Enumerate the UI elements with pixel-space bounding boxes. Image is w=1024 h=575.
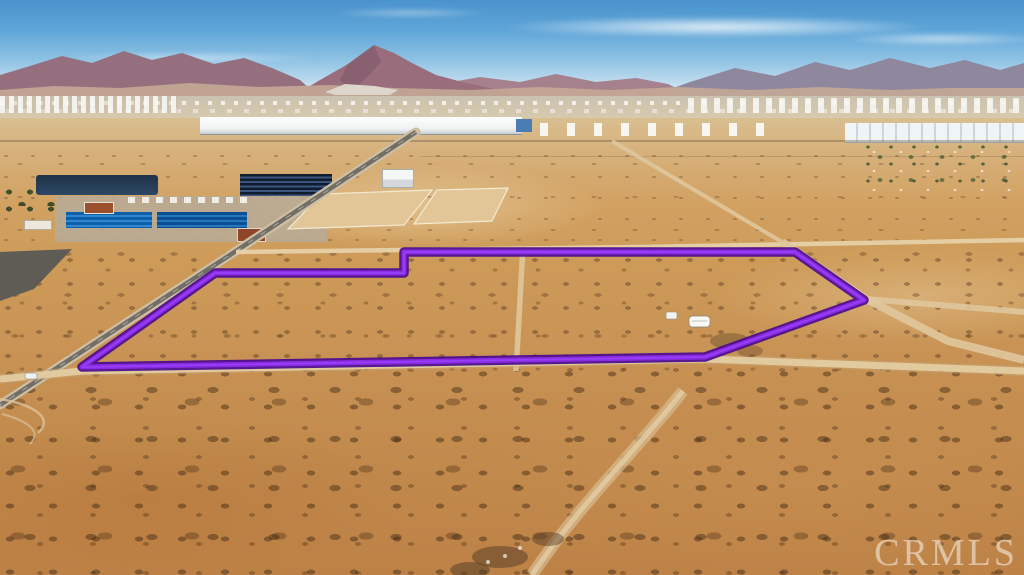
dirt-road-diagonal bbox=[612, 141, 782, 242]
paved-lot-wedge bbox=[0, 249, 72, 301]
tire-track bbox=[2, 414, 35, 444]
car-on-road bbox=[25, 373, 37, 379]
white-rock bbox=[518, 546, 522, 550]
white-vehicle bbox=[666, 312, 677, 319]
overlay-graphics bbox=[0, 0, 1024, 575]
rocky-patch bbox=[532, 532, 564, 546]
roads bbox=[0, 132, 1024, 575]
graded-pad bbox=[288, 190, 432, 229]
crmls-watermark: CRMLS bbox=[874, 531, 1018, 575]
aerial-land-photo: CRMLS bbox=[0, 0, 1024, 575]
dirt-road-vertical bbox=[516, 246, 523, 371]
white-rock bbox=[486, 560, 490, 564]
white-rock bbox=[503, 554, 507, 558]
